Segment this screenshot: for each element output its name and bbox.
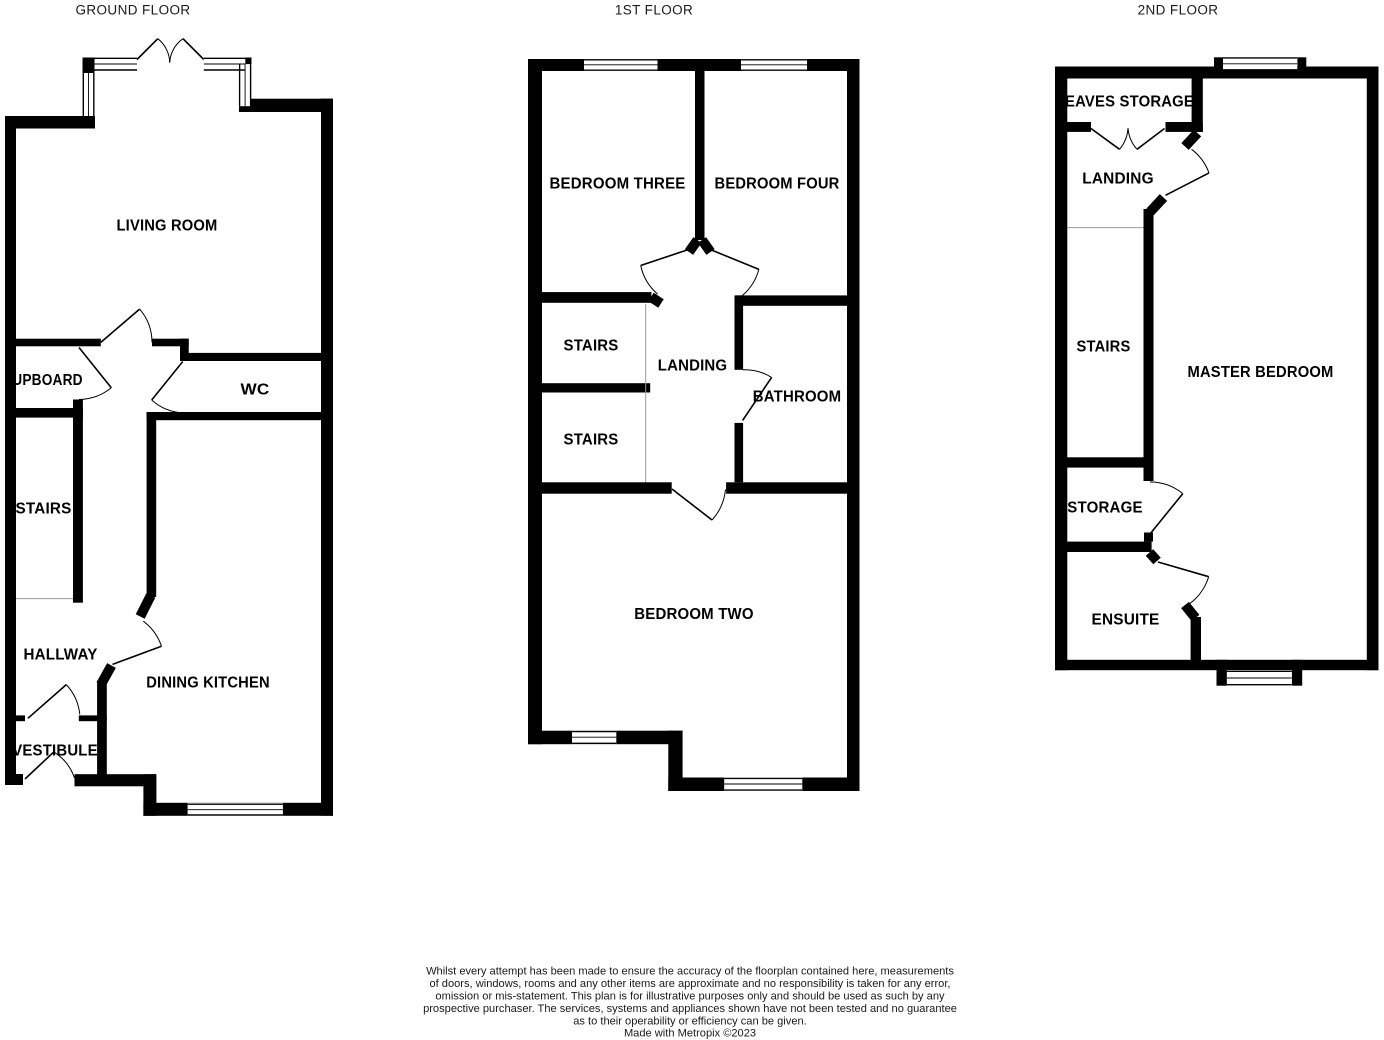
svg-text:LIVING ROOM: LIVING ROOM [117, 218, 218, 235]
svg-text:BEDROOM THREE: BEDROOM THREE [550, 176, 686, 193]
svg-text:LANDING: LANDING [1082, 171, 1154, 188]
svg-text:1ST FLOOR: 1ST FLOOR [615, 3, 693, 18]
svg-text:EAVES STORAGE: EAVES STORAGE [1065, 94, 1194, 111]
svg-text:VESTIBULE: VESTIBULE [12, 743, 98, 760]
svg-text:LANDING: LANDING [658, 358, 728, 375]
svg-text:of doors, windows, rooms and a: of doors, windows, rooms and any other i… [429, 978, 950, 990]
svg-text:omission or mis-statement. Thi: omission or mis-statement. This plan is … [435, 991, 945, 1003]
svg-text:STAIRS: STAIRS [564, 338, 619, 355]
svg-text:WC: WC [241, 382, 270, 399]
svg-text:STAIRS: STAIRS [564, 432, 619, 449]
svg-text:UPBOARD: UPBOARD [12, 372, 83, 389]
svg-text:Made with Metropix ©2023: Made with Metropix ©2023 [624, 1028, 756, 1040]
svg-text:MASTER BEDROOM: MASTER BEDROOM [1188, 364, 1334, 381]
svg-text:HALLWAY: HALLWAY [24, 647, 98, 664]
svg-text:BEDROOM TWO: BEDROOM TWO [634, 606, 754, 623]
svg-text:BATHROOM: BATHROOM [753, 389, 842, 406]
svg-text:Whilst every attempt has been: Whilst every attempt has been made to en… [426, 966, 954, 978]
svg-text:DINING KITCHEN: DINING KITCHEN [146, 675, 270, 692]
svg-text:BEDROOM FOUR: BEDROOM FOUR [715, 176, 840, 193]
svg-text:2ND FLOOR: 2ND FLOOR [1138, 3, 1219, 18]
svg-text:GROUND FLOOR: GROUND FLOOR [75, 3, 190, 18]
svg-text:STAIRS: STAIRS [16, 501, 72, 518]
svg-text:ENSUITE: ENSUITE [1092, 612, 1160, 629]
svg-text:STAIRS: STAIRS [1077, 339, 1131, 356]
svg-text:prospective purchaser. The ser: prospective purchaser. The services, sys… [423, 1003, 957, 1015]
svg-text:STORAGE: STORAGE [1067, 500, 1143, 517]
svg-text:as to their operability or eff: as to their operability or efficiency ca… [573, 1016, 807, 1028]
